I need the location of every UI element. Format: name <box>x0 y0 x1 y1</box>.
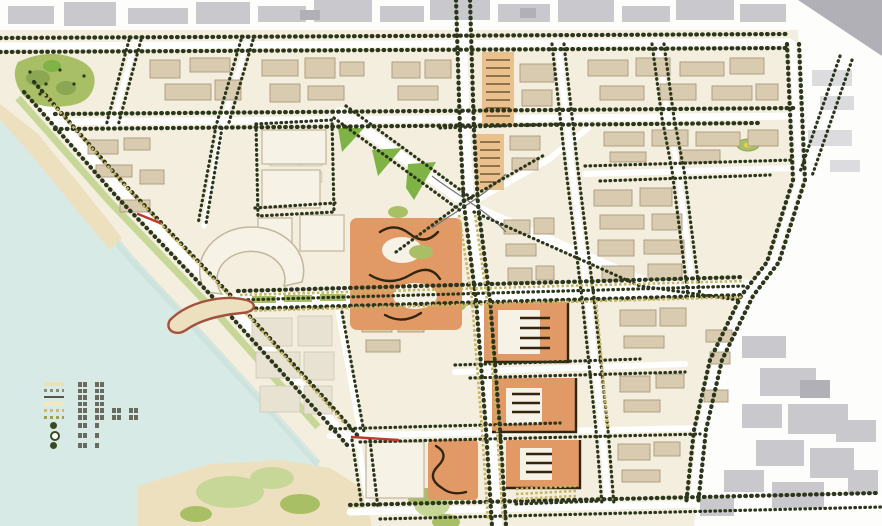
legend-item-9 <box>44 441 139 451</box>
legend-label-text <box>112 415 122 420</box>
legend-label-text <box>78 382 88 387</box>
legend-label-text <box>95 382 105 387</box>
context-buildings-light <box>808 70 860 172</box>
legend-item-8 <box>44 431 139 441</box>
legend-label-text <box>95 402 105 407</box>
orange-block-south <box>428 440 478 500</box>
legend-item-6 <box>44 414 139 421</box>
legend-label-text <box>95 423 100 428</box>
legend-label-text <box>78 402 88 407</box>
legend-label-text <box>78 415 88 420</box>
legend-label-text <box>95 389 105 394</box>
orange-block-east-1 <box>484 302 568 362</box>
legend-label-text <box>112 408 122 413</box>
orange-block-central <box>350 218 462 330</box>
legend-label-text <box>78 395 88 400</box>
legend-item-7 <box>44 421 139 431</box>
legend-label-text <box>95 443 100 448</box>
legend-label-text <box>129 408 139 413</box>
legend-label-text <box>95 395 105 400</box>
legend-label-text <box>95 415 105 420</box>
legend-label-text <box>78 423 88 428</box>
legend-label-text <box>78 443 88 448</box>
legend-label-text <box>78 433 88 438</box>
legend-label-text <box>129 415 139 420</box>
legend-label-text <box>95 433 100 438</box>
legend-item-2 <box>44 388 139 395</box>
tree-icon <box>44 442 64 449</box>
tree-icon <box>44 422 64 429</box>
tree-ring-icon <box>44 431 64 441</box>
line-icon <box>44 396 64 398</box>
band-icon <box>44 382 64 386</box>
legend-item-5 <box>44 407 139 414</box>
hedge-icon <box>44 409 64 412</box>
road-top <box>0 42 790 46</box>
park-small <box>388 206 408 218</box>
legend-item-1 <box>44 381 139 388</box>
legend-label-text <box>78 389 88 394</box>
orange-block-east-3 <box>506 440 580 488</box>
legend-item-4 <box>44 401 139 408</box>
master-plan-map <box>0 0 882 526</box>
legend-label-text <box>78 408 88 413</box>
legend <box>44 381 139 451</box>
dashes-icon <box>44 389 64 392</box>
band-icon <box>44 402 64 406</box>
hedge-icon <box>44 416 64 419</box>
legend-label-text <box>95 408 105 413</box>
legend-item-3 <box>44 394 139 401</box>
